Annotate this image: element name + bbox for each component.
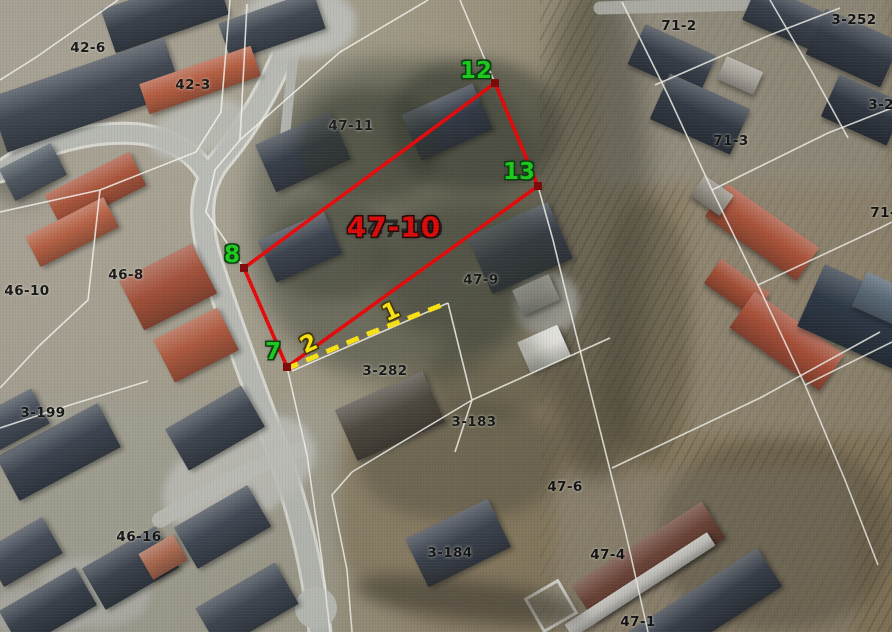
labels-layer: 47-10 47-10 42-642-347-1146-846-103-1994… xyxy=(0,0,892,632)
parcel-label: 47-6 xyxy=(547,479,582,495)
parcel-label: 71-4 xyxy=(870,205,892,221)
parcel-label: 46-16 xyxy=(116,529,161,545)
parcel-label: 3-184 xyxy=(427,545,472,561)
parcel-label: 3-29 xyxy=(868,97,892,113)
boundary-point-label: 12 xyxy=(460,58,492,84)
boundary-point-label: 8 xyxy=(224,242,240,268)
parcel-label: 3-282 xyxy=(362,363,407,379)
aerial-map[interactable]: 47-10 47-10 42-642-347-1146-846-103-1994… xyxy=(0,0,892,632)
parcel-47-10-label: 47-10 xyxy=(347,211,442,244)
parcel-label: 47-1 xyxy=(620,614,655,630)
parcel-label: 47-9 xyxy=(463,272,498,288)
parcel-label: 46-8 xyxy=(108,267,143,283)
parcel-label: 47-11 xyxy=(328,118,373,134)
boundary-point-label: 7 xyxy=(265,339,281,365)
measure-label: 1 xyxy=(378,297,404,327)
parcel-label: 3-252 xyxy=(831,12,876,28)
parcel-label: 42-6 xyxy=(70,40,105,56)
boundary-point-label: 13 xyxy=(503,159,535,185)
parcel-label: 42-3 xyxy=(175,77,210,93)
measure-label: 2 xyxy=(296,329,322,359)
parcel-label: 3-199 xyxy=(20,405,65,421)
parcel-label: 71-3 xyxy=(713,133,748,149)
parcel-label: 3-183 xyxy=(451,414,496,430)
parcel-label: 46-10 xyxy=(4,283,49,299)
parcel-label: 71-2 xyxy=(661,18,696,34)
parcel-label: 47-4 xyxy=(590,547,625,563)
